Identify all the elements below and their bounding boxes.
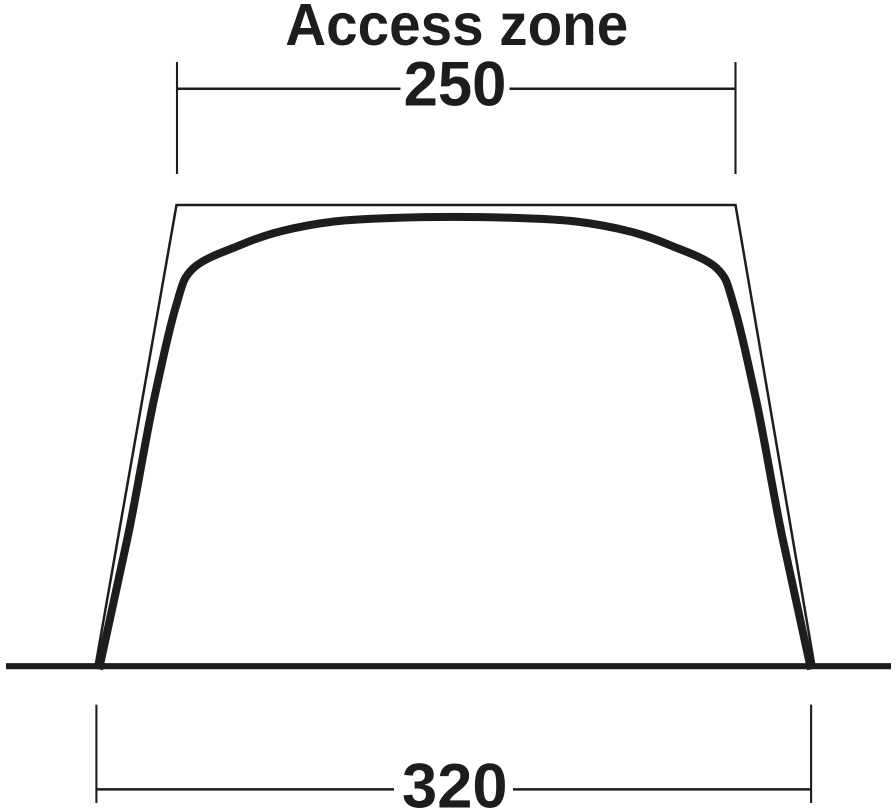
svg-text:250: 250 — [404, 49, 507, 119]
svg-text:320: 320 — [402, 751, 508, 808]
